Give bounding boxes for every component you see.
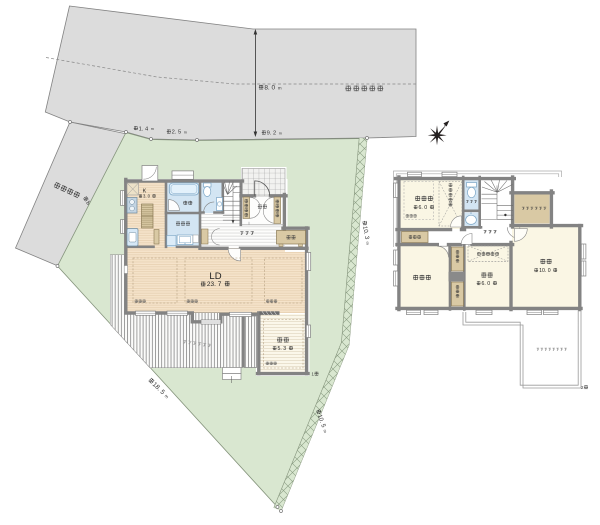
svg-text:m: m — [184, 131, 187, 135]
svg-text:3. 0: 3. 0 — [143, 194, 151, 199]
svg-text:6. 0: 6. 0 — [482, 281, 491, 287]
svg-text:5. 3: 5. 3 — [278, 346, 287, 352]
svg-text:m: m — [278, 85, 282, 90]
svg-text:m: m — [279, 132, 282, 136]
svg-text:9. 2: 9. 2 — [267, 131, 277, 137]
svg-text:1. 4: 1. 4 — [139, 126, 149, 132]
svg-text:8. 0: 8. 0 — [264, 85, 275, 92]
svg-text:2. 5: 2. 5 — [172, 130, 182, 136]
svg-text:6. 0: 6. 0 — [419, 205, 428, 211]
svg-text:10. 0: 10. 0 — [539, 268, 551, 274]
svg-text:23. 7: 23. 7 — [207, 281, 222, 288]
svg-text:m: m — [151, 127, 154, 131]
